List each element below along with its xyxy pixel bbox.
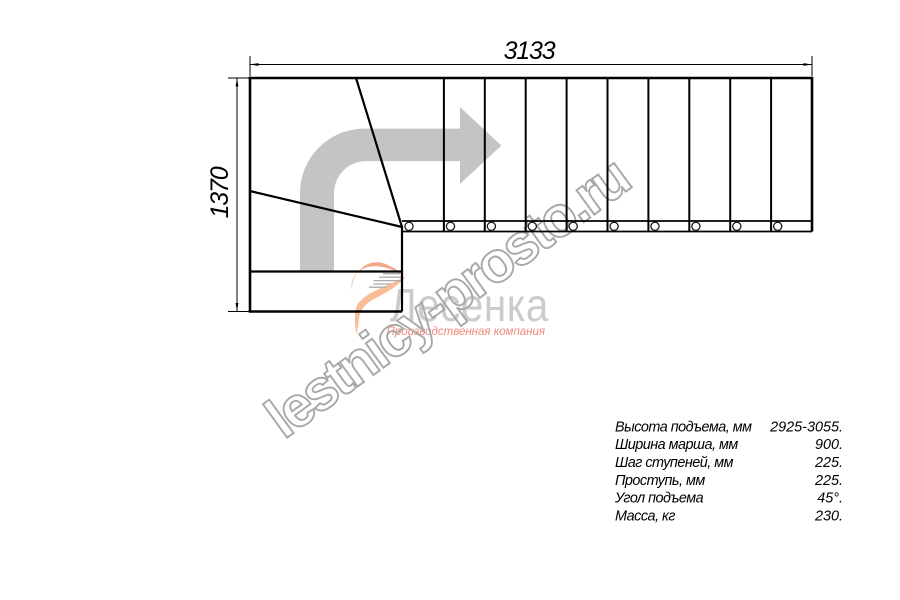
svg-text:Высота подъема, мм: Высота подъема, мм [615, 419, 752, 435]
svg-text:Угол подъема: Угол подъема [614, 491, 704, 507]
svg-text:3133: 3133 [504, 37, 556, 65]
svg-text:900.: 900. [815, 437, 843, 453]
svg-text:225.: 225. [814, 455, 843, 471]
svg-text:Ширина марша, мм: Ширина марша, мм [615, 437, 738, 453]
svg-text:230.: 230. [814, 508, 843, 524]
svg-text:2925-3055.: 2925-3055. [769, 419, 843, 435]
svg-text:Масса, кг: Масса, кг [615, 508, 675, 524]
svg-text:Проступь, мм: Проступь, мм [615, 473, 705, 489]
svg-text:1370: 1370 [206, 166, 234, 218]
svg-text:Шаг ступеней, мм: Шаг ступеней, мм [615, 455, 734, 471]
svg-text:45°.: 45°. [817, 491, 843, 507]
svg-text:225.: 225. [814, 473, 843, 489]
